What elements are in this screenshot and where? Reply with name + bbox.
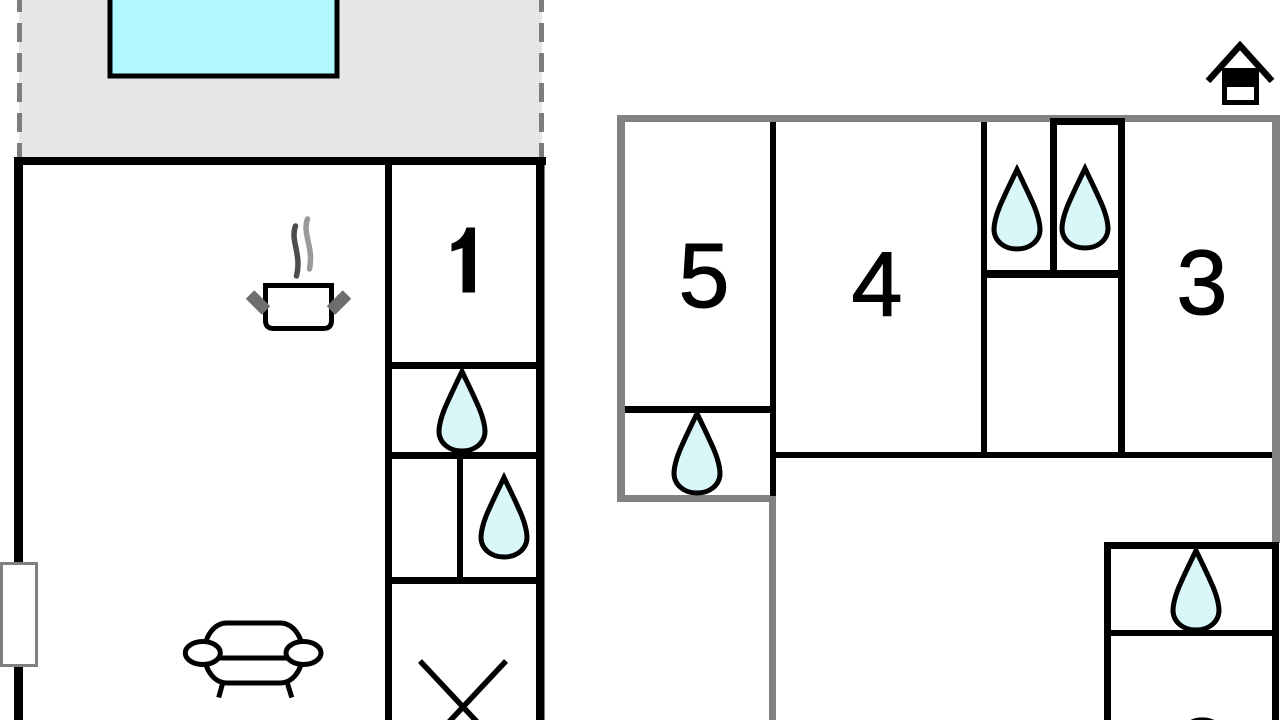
svg-text:3: 3 (1176, 232, 1227, 334)
svg-text:5: 5 (678, 225, 729, 327)
svg-text:4: 4 (851, 234, 902, 336)
svg-text:2: 2 (1176, 700, 1227, 720)
